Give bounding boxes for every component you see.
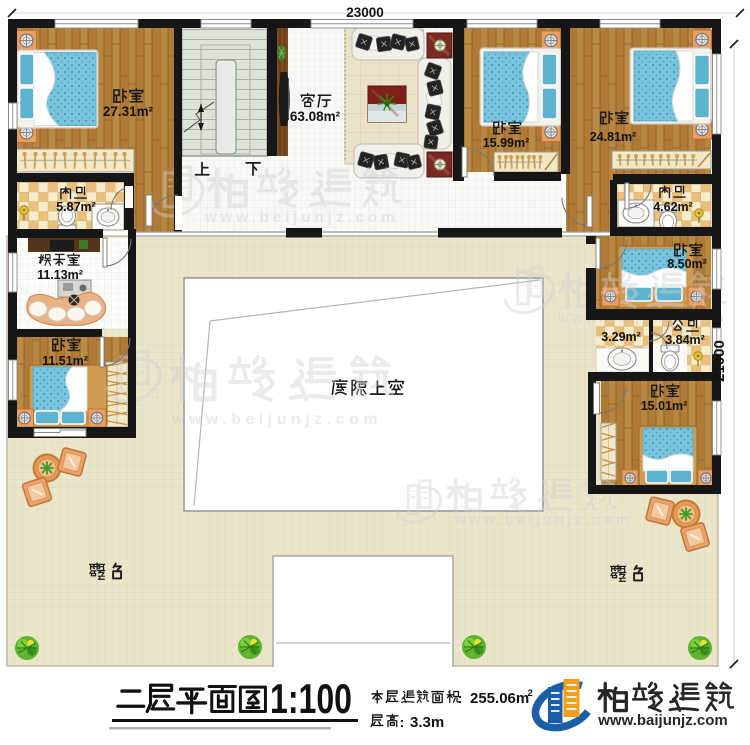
svg-text:1:100: 1:100 [270, 675, 352, 722]
svg-text:2: 2 [528, 688, 533, 699]
svg-text::: : [400, 714, 405, 730]
svg-text:4.62m²: 4.62m² [653, 200, 693, 214]
svg-text:www.baijunjz.com: www.baijunjz.com [597, 712, 727, 729]
svg-text:3.84m²: 3.84m² [665, 333, 705, 347]
svg-text:255.06m: 255.06m [470, 690, 529, 707]
svg-text:3.3m: 3.3m [410, 714, 444, 731]
svg-text:27.31m²: 27.31m² [103, 104, 154, 119]
svg-text:5.87m²: 5.87m² [56, 200, 96, 214]
svg-text:8.50m²: 8.50m² [667, 257, 707, 271]
svg-text:24.81m²: 24.81m² [590, 130, 637, 144]
svg-text:11.51m²: 11.51m² [42, 354, 88, 368]
svg-text:www.baijunjz.com: www.baijunjz.com [454, 511, 632, 527]
svg-text:23000: 23000 [346, 5, 384, 20]
svg-text:15.99m²: 15.99m² [483, 136, 530, 150]
svg-text:3.29m²: 3.29m² [601, 330, 641, 344]
svg-text:11.13m²: 11.13m² [37, 268, 83, 282]
svg-text:63.08m²: 63.08m² [290, 109, 341, 124]
svg-text:www.beijunjz.com: www.beijunjz.com [171, 411, 382, 428]
svg-text::: : [458, 690, 463, 706]
svg-text:15.01m²: 15.01m² [641, 399, 688, 413]
svg-text:www.beijunjz.com: www.beijunjz.com [204, 209, 398, 226]
svg-text:21000: 21000 [711, 340, 728, 382]
